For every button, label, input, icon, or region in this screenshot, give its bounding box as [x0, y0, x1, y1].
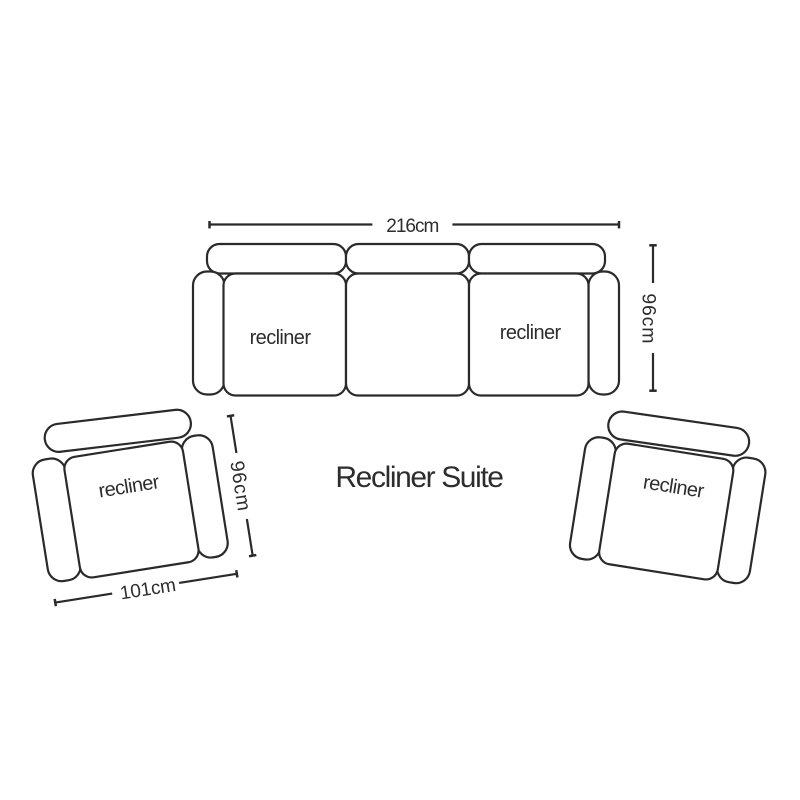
svg-text:96cm: 96cm	[637, 293, 659, 344]
svg-text:101cm: 101cm	[119, 575, 178, 605]
svg-text:recliner: recliner	[500, 322, 562, 344]
svg-text:recliner: recliner	[250, 327, 312, 349]
svg-text:Recliner Suite: Recliner Suite	[335, 461, 503, 494]
svg-text:96cm: 96cm	[225, 459, 255, 513]
svg-text:216cm: 216cm	[386, 216, 438, 237]
